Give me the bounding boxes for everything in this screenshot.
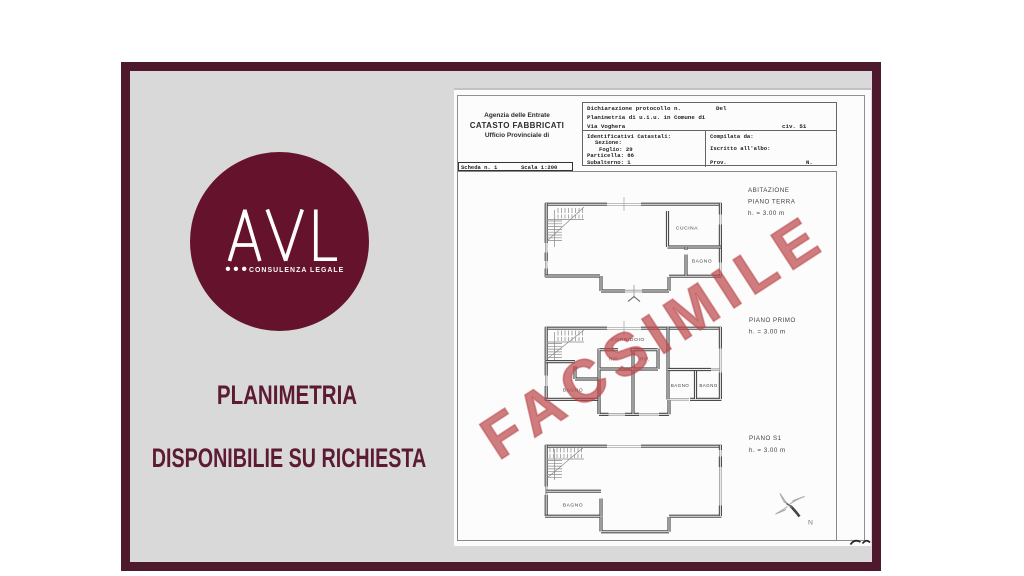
svg-text:h. = 3.00 m: h. = 3.00 m bbox=[749, 329, 786, 336]
svg-text:PIANO PRIMO: PIANO PRIMO bbox=[749, 317, 796, 324]
svg-text:BAGNO: BAGNO bbox=[671, 383, 689, 388]
svg-text:BAGNO: BAGNO bbox=[699, 383, 717, 388]
svg-text:PIANO TERRA: PIANO TERRA bbox=[748, 199, 796, 206]
svg-text:CUCINA: CUCINA bbox=[676, 226, 698, 232]
svg-text:BAGNO: BAGNO bbox=[563, 503, 583, 509]
svg-text:h. = 3.00 m: h. = 3.00 m bbox=[749, 447, 786, 454]
svg-text:N: N bbox=[808, 520, 813, 527]
svg-text:ABITAZIONE: ABITAZIONE bbox=[748, 187, 789, 194]
svg-text:PIANO S1: PIANO S1 bbox=[749, 435, 782, 442]
